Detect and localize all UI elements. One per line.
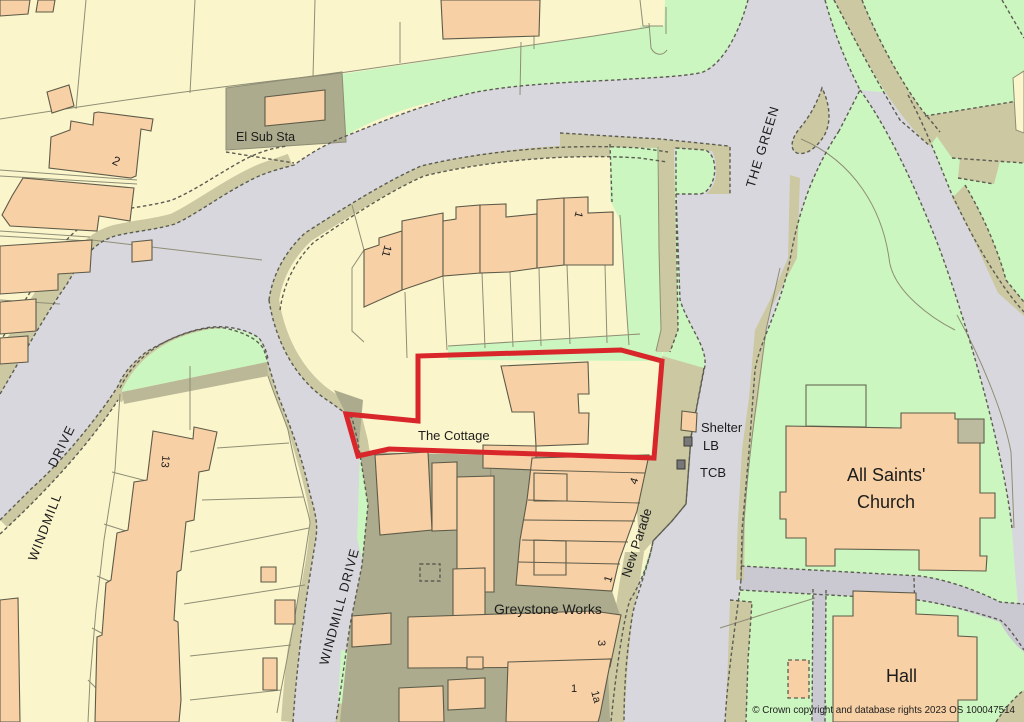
svg-text:13: 13: [158, 455, 171, 468]
svg-text:Shelter: Shelter: [701, 420, 743, 435]
svg-text:TCB: TCB: [700, 465, 726, 480]
svg-text:Greystone Works: Greystone Works: [494, 601, 602, 617]
svg-text:Hall: Hall: [886, 666, 917, 686]
svg-text:All Saints': All Saints': [847, 465, 925, 485]
svg-text:3: 3: [595, 640, 607, 646]
svg-text:El Sub Sta: El Sub Sta: [236, 130, 295, 144]
svg-text:LB: LB: [703, 438, 719, 453]
svg-text:1: 1: [571, 683, 577, 695]
svg-text:Church: Church: [857, 492, 915, 512]
svg-text:The Cottage: The Cottage: [418, 428, 490, 443]
svg-text:© Crown copyright and database: © Crown copyright and database rights 20…: [752, 705, 1015, 716]
